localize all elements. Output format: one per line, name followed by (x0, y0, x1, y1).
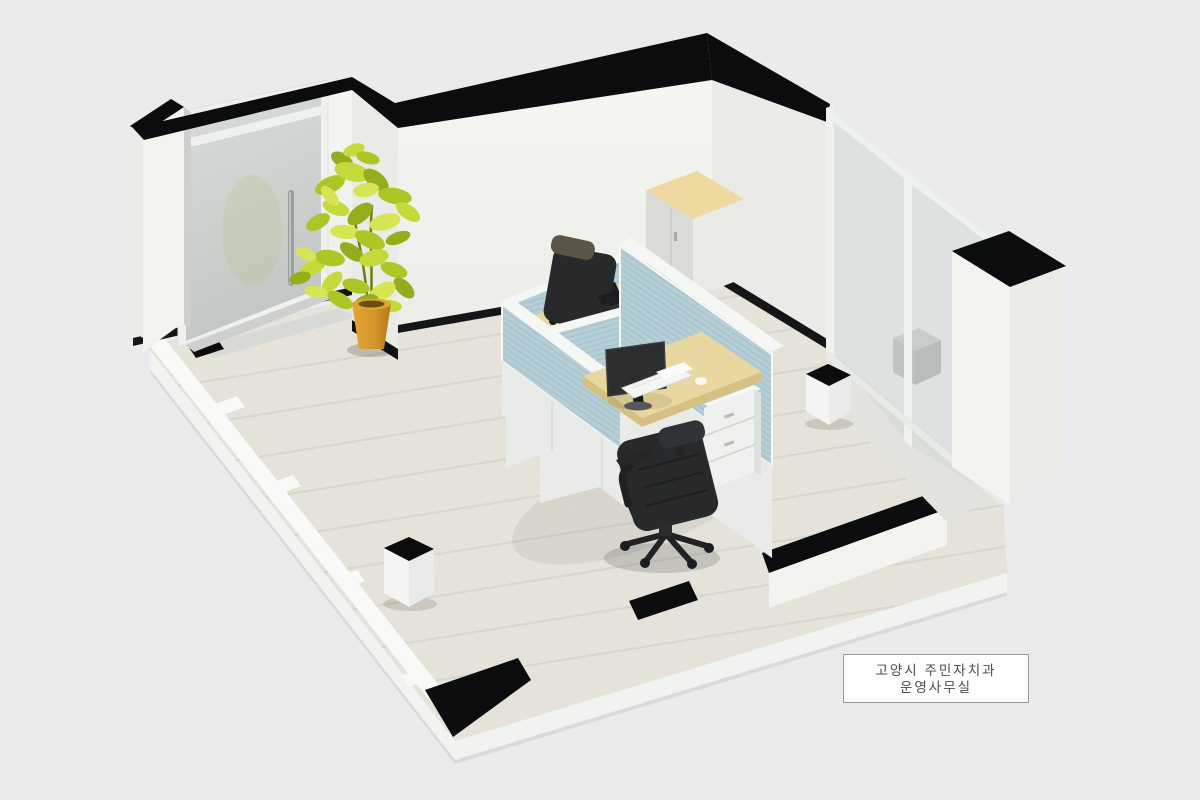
entrance-side-outer-face (130, 126, 143, 338)
column-front-face (952, 251, 1010, 505)
glass-frame-mid-post (904, 176, 912, 448)
chair-near-caster (704, 543, 714, 553)
glass-frame-left-post (826, 105, 834, 356)
trash-bin-1 (383, 537, 437, 611)
trash-bin-2 (805, 364, 853, 430)
room-label-line2: 운영사무실 (900, 679, 972, 696)
office-3d-render: 고양시 주민자치과 운영사무실 (0, 0, 1200, 800)
cabinet-handle (674, 232, 677, 241)
right-column (952, 231, 1066, 505)
monitor-near-base (624, 402, 652, 411)
door-glass-reflection (222, 175, 282, 285)
room-label-line1: 고양시 주민자치과 (875, 662, 996, 679)
entrance-side-front-face (143, 107, 184, 352)
chair-near-caster (687, 559, 697, 569)
plant-pot-soil (359, 301, 385, 308)
door-handle (288, 190, 294, 286)
drawer-side (754, 389, 761, 476)
door-jamb-shadow (184, 107, 191, 330)
room-label: 고양시 주민자치과 운영사무실 (843, 654, 1029, 703)
entrance-side-wall (130, 99, 191, 352)
chair-near-caster (620, 541, 630, 551)
chair-near-caster (640, 558, 650, 568)
mouse (695, 377, 707, 385)
